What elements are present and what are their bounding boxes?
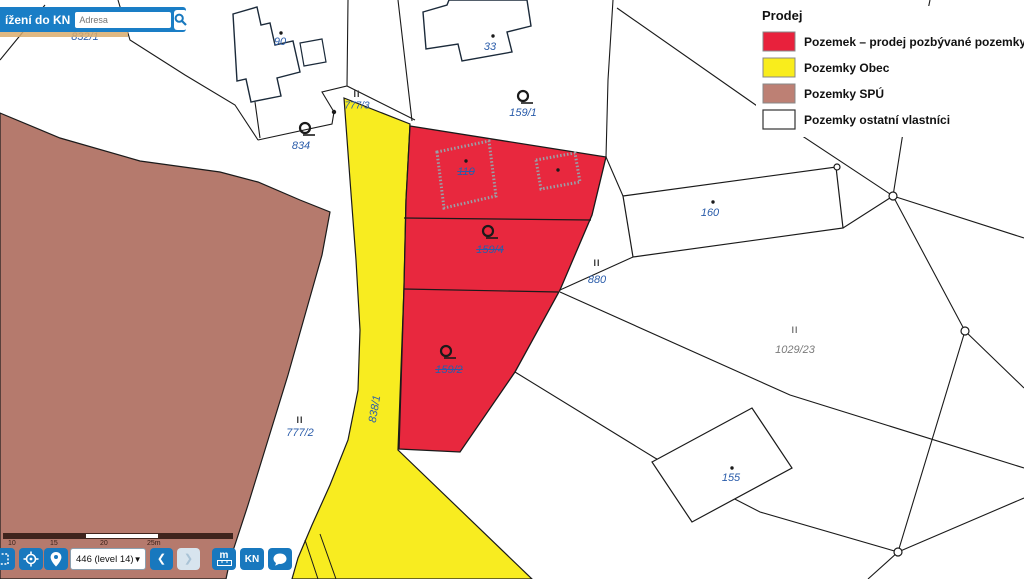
legend-label: Pozemky SPÚ [804, 87, 884, 101]
zoom-level-value: 446 (level 14) [71, 554, 134, 565]
toolbar-strip [0, 32, 128, 37]
scale-segment [158, 534, 232, 538]
legend-item-prodej: Pozemek – prodej pozbývané pozemky [762, 31, 1024, 52]
cadastral-map-app: 832/1 90 33 II 777/3 834 159/1 110 159/4… [0, 0, 1024, 579]
dashed-selection-icon [0, 553, 9, 565]
measure-tool-button[interactable]: m [212, 548, 236, 570]
legend-label: Pozemky ostatní vlastníci [804, 113, 950, 127]
search-bar-title: ížení do KN [0, 13, 75, 27]
map-pin-icon [49, 551, 63, 567]
legend-swatch-brown [762, 83, 796, 104]
location-pin-button[interactable] [44, 548, 68, 570]
chevron-left-icon: ❮ [157, 554, 166, 565]
legend-label: Pozemek – prodej pozbývané pozemky [804, 35, 1024, 49]
measure-ruler-icon: m [217, 552, 232, 566]
legend-swatch-yellow [762, 57, 796, 78]
map-legend: Prodej Pozemek – prodej pozbývané pozemk… [756, 6, 1024, 137]
legend-swatch-red [762, 31, 796, 52]
chevron-right-icon: ❯ [184, 554, 193, 565]
kn-search-bar: ížení do KN [0, 7, 186, 32]
building-90-annex[interactable] [300, 39, 326, 66]
history-back-button[interactable]: ❮ [150, 548, 173, 570]
legend-title: Prodej [762, 8, 1024, 23]
search-icon [174, 13, 187, 26]
scale-tick-label: 25m [147, 540, 161, 547]
legend-label: Pozemky Obec [804, 61, 889, 75]
target-icon [23, 551, 39, 567]
feedback-button[interactable] [268, 548, 292, 570]
scale-tick-label: 20 [100, 540, 108, 547]
chevron-down-icon: ▼ [134, 555, 147, 564]
scale-tick-label: 15 [50, 540, 58, 547]
locate-me-button[interactable] [19, 548, 43, 570]
address-search-input[interactable] [75, 12, 171, 28]
scale-segment [4, 534, 86, 538]
history-forward-button[interactable]: ❯ [177, 548, 200, 570]
scale-tick-label: 10 [8, 540, 16, 547]
selection-tool-button[interactable] [0, 548, 15, 570]
map-scale-bar [3, 533, 233, 539]
legend-item-obec: Pozemky Obec [762, 57, 1024, 78]
speech-bubble-icon [272, 552, 288, 567]
search-button[interactable] [174, 10, 187, 30]
legend-item-spu: Pozemky SPÚ [762, 83, 1024, 104]
kn-button-label: KN [245, 554, 259, 565]
legend-swatch-white [762, 109, 796, 130]
zoom-level-dropdown[interactable]: 446 (level 14) ▼ [70, 548, 146, 570]
junction-dot [332, 110, 336, 114]
kn-layer-button[interactable]: KN [240, 548, 264, 570]
scale-segment [86, 534, 158, 538]
legend-item-ostatni: Pozemky ostatní vlastníci [762, 109, 1024, 130]
